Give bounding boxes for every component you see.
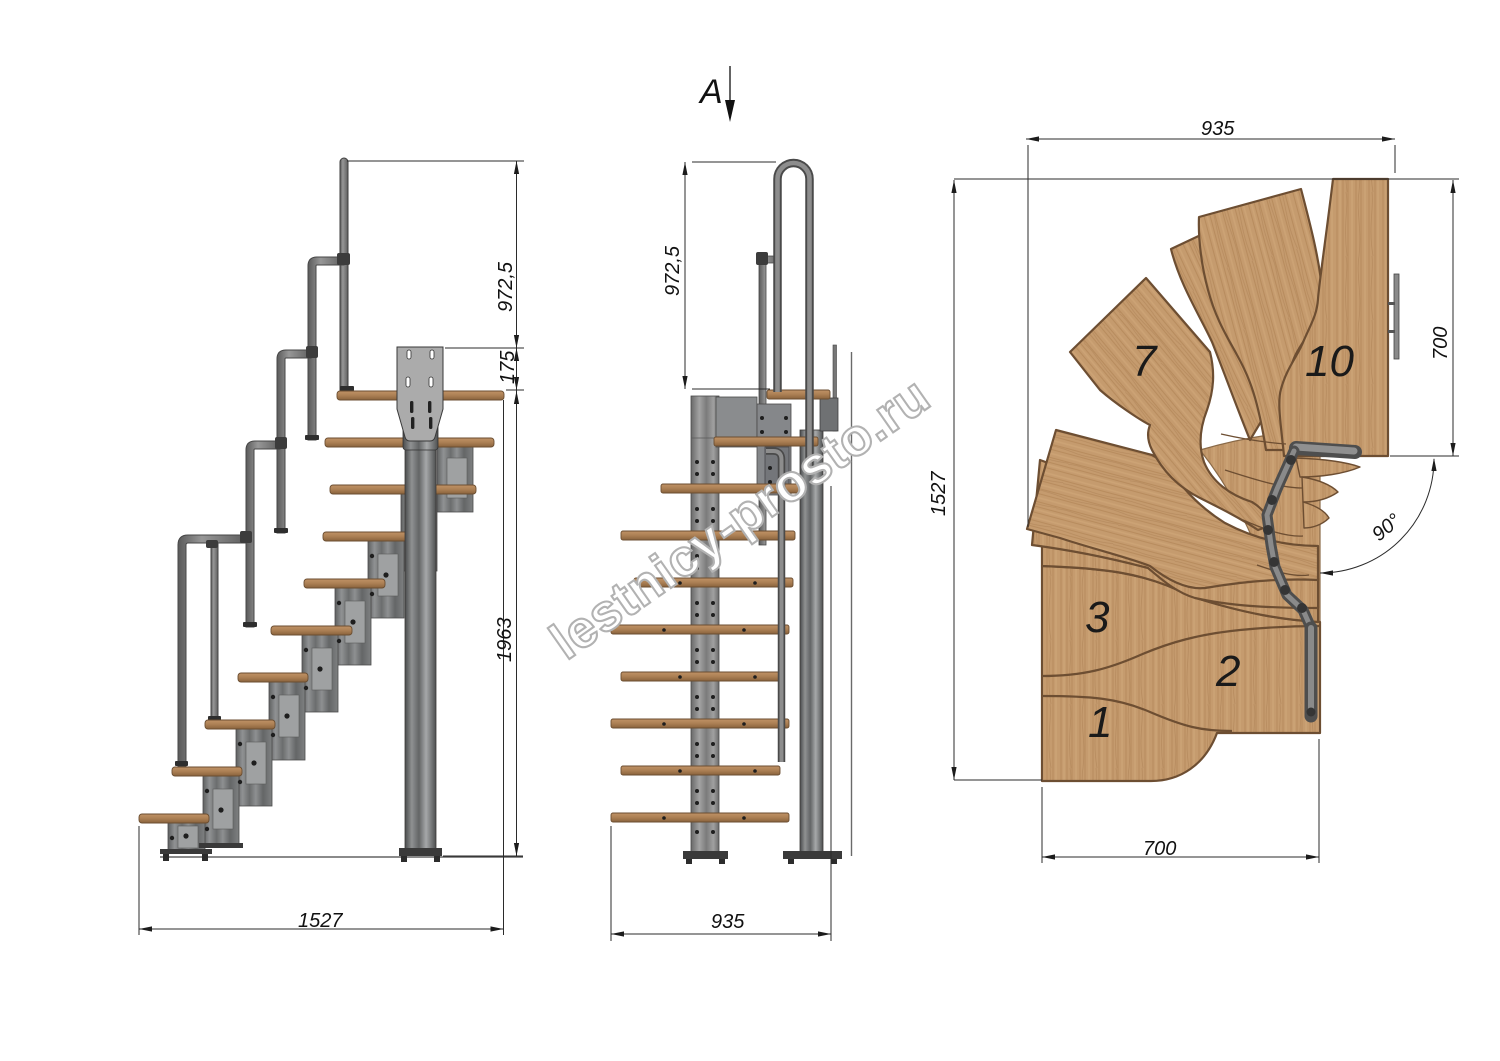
svg-text:7: 7 [1132,337,1158,386]
svg-text:2: 2 [1215,647,1240,696]
svg-text:1: 1 [1088,698,1112,747]
svg-text:1527: 1527 [298,910,343,932]
svg-text:972,5: 972,5 [662,245,684,296]
svg-text:1527: 1527 [928,471,950,516]
svg-text:972,5: 972,5 [495,261,517,312]
svg-text:700: 700 [1430,327,1452,360]
svg-text:935: 935 [1201,118,1235,140]
svg-text:935: 935 [711,911,745,933]
svg-text:175: 175 [497,350,519,384]
svg-text:A: A [698,73,723,111]
svg-text:700: 700 [1143,838,1176,860]
svg-text:1963: 1963 [494,618,516,663]
svg-text:10: 10 [1305,337,1354,386]
svg-text:3: 3 [1085,593,1110,642]
